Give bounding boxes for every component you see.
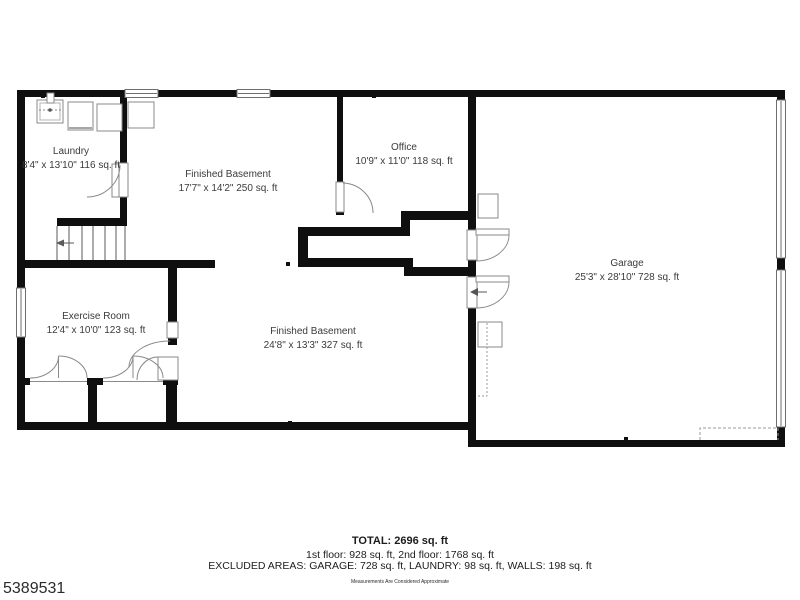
- room-dims: 8'4" x 13'10" 116 sq. ft: [22, 159, 120, 173]
- room-name: Garage: [575, 257, 679, 271]
- tick-mark: [288, 421, 292, 425]
- room-dims: 10'9" x 11'0" 118 sq. ft: [355, 155, 452, 169]
- washer-icon: [68, 102, 93, 130]
- sink-drain: [48, 108, 52, 112]
- wall-chase-lower: [298, 258, 404, 267]
- door-panel: [476, 229, 509, 235]
- door-swing-arc: [476, 235, 509, 261]
- room-dims: 12'4" x 10'0" 123 sq. ft: [47, 324, 146, 338]
- disclaimer-text: Measurements Are Considered Approximate: [0, 579, 800, 585]
- room-name: Finished Basement: [179, 168, 278, 182]
- wall-garage-west-mid: [468, 260, 476, 277]
- room-label-basement-lower: Finished Basement 24'8" x 13'3" 327 sq. …: [264, 325, 363, 352]
- utility-sink-icon: [37, 93, 63, 123]
- door-panel: [476, 276, 509, 282]
- door-swing-arc: [137, 357, 158, 380]
- door-swing-arc: [343, 183, 373, 213]
- room-label-exercise: Exercise Room 12'4" x 10'0" 123 sq. ft: [47, 310, 146, 337]
- tick-mark: [624, 437, 628, 441]
- sink-faucet: [47, 93, 54, 103]
- room-dims: 24'8" x 13'3" 327 sq. ft: [264, 339, 363, 353]
- floorplan-screenshot: Laundry 8'4" x 13'10" 116 sq. ft Finishe…: [0, 0, 800, 600]
- bifold-door-arc: [30, 356, 59, 378]
- room-name: Exercise Room: [47, 310, 146, 324]
- wall-chase-upper: [298, 227, 401, 236]
- door-swing-arc: [476, 282, 509, 308]
- wall-closet-divider: [88, 385, 97, 422]
- wall-basement-bottom: [17, 422, 476, 430]
- room-name: Office: [355, 141, 452, 155]
- dryer-icon: [97, 104, 122, 131]
- wall-chase-cap: [298, 227, 308, 267]
- door-frame: [167, 322, 178, 338]
- garage-stoop-dashed: [700, 428, 778, 440]
- floorplan-drawing: [0, 0, 800, 600]
- wall-exercise-east-upper: [168, 260, 177, 322]
- freezer-icon: [128, 102, 154, 128]
- bifold-door-arc: [103, 356, 133, 378]
- room-label-office: Office 10'9" x 11'0" 118 sq. ft: [355, 141, 452, 168]
- shelf-icon: [478, 194, 498, 218]
- water-heater-icon: [478, 322, 502, 396]
- room-label-garage: Garage 25'3" x 28'10" 728 sq. ft: [575, 257, 679, 284]
- total-area-text: TOTAL: 2696 sq. ft: [0, 535, 800, 547]
- wall-garage-west-lower: [468, 308, 476, 447]
- door-frame: [336, 182, 344, 212]
- wall-laundry-bottom: [57, 218, 127, 226]
- water-heater-outline: [478, 322, 502, 347]
- wall-chase-lower-right: [404, 267, 468, 276]
- room-label-basement-upper: Finished Basement 17'7" x 14'2" 250 sq. …: [179, 168, 278, 195]
- wall-office-west: [337, 97, 343, 182]
- wall-garage-west-upper: [468, 97, 476, 230]
- tick-mark: [286, 262, 290, 266]
- wall-closet-top-mid: [87, 378, 103, 385]
- door-panel: [158, 357, 178, 380]
- tick-mark: [625, 93, 629, 97]
- excluded-areas-text: EXCLUDED AREAS: GARAGE: 728 sq. ft, LAUN…: [0, 560, 800, 572]
- tick-mark: [372, 94, 376, 98]
- room-label-laundry: Laundry 8'4" x 13'10" 116 sq. ft: [22, 145, 120, 172]
- bifold-door-arc: [59, 356, 88, 378]
- wall-closet-top-left: [17, 378, 30, 385]
- tick-mark: [41, 94, 45, 98]
- listing-id: 5389531: [3, 580, 65, 598]
- room-name: Laundry: [22, 145, 120, 159]
- room-dims: 17'7" x 14'2" 250 sq. ft: [179, 182, 278, 196]
- room-name: Finished Basement: [264, 325, 363, 339]
- room-dims: 25'3" x 28'10" 728 sq. ft: [575, 271, 679, 285]
- wall-exercise-top: [17, 260, 215, 268]
- wall-garage-bottom: [468, 440, 785, 447]
- wall-chase-upper-right: [401, 211, 468, 220]
- stairs: [56, 226, 125, 260]
